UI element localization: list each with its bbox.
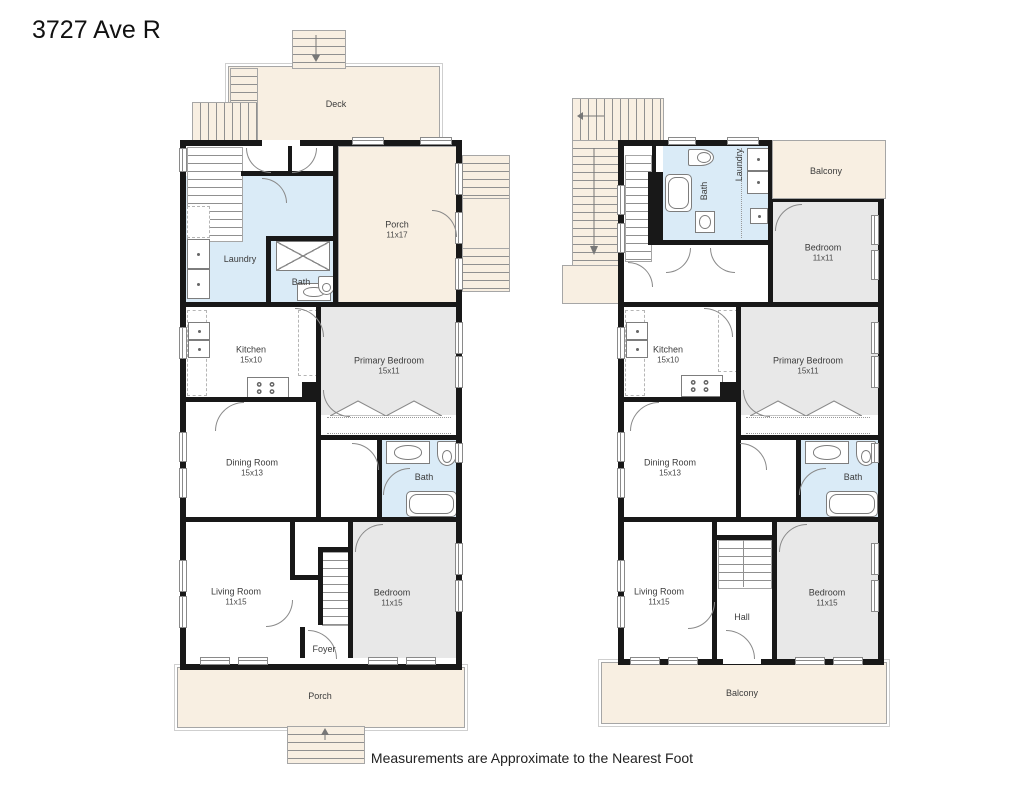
window — [179, 432, 187, 462]
room-label-balcony-front: Balcony — [726, 687, 758, 699]
window — [352, 137, 384, 145]
room-label-living-room-2: Living Room11x15 — [634, 586, 684, 609]
window — [727, 137, 759, 145]
window — [871, 443, 879, 463]
window — [420, 137, 452, 145]
stairs-up-arrow-icon — [320, 727, 330, 741]
window — [455, 580, 463, 612]
window — [455, 356, 463, 388]
window — [179, 596, 187, 628]
window — [871, 580, 879, 612]
window — [617, 223, 625, 253]
window — [238, 657, 268, 665]
window — [617, 560, 625, 592]
room-label-foyer: Foyer — [312, 643, 335, 655]
room-label-primary-bedroom-2: Primary Bedroom15x11 — [773, 355, 843, 378]
stairs-down-arrow-icon — [589, 146, 599, 258]
room-label-primary-bedroom: Primary Bedroom15x11 — [354, 355, 424, 378]
porch-side-stairs-landing — [462, 198, 510, 250]
room-label-bath-main: Bath — [415, 471, 434, 483]
room-label-hall: Hall — [734, 611, 750, 623]
stairs-left-arrow-icon — [576, 111, 606, 121]
window — [179, 468, 187, 498]
room-label-bath-rear: Bath — [698, 182, 710, 201]
footer-note: Measurements are Approximate to the Near… — [330, 750, 734, 766]
room-label-bedroom: Bedroom11x15 — [374, 587, 411, 610]
exterior-stairs-landing — [562, 265, 620, 304]
window — [455, 322, 463, 354]
room-label-laundry-2: Laundry — [733, 149, 745, 182]
window — [871, 215, 879, 245]
window — [455, 543, 463, 575]
window — [455, 163, 463, 195]
porch-side-stairs-upper — [462, 155, 510, 200]
window — [668, 657, 698, 665]
window — [668, 137, 696, 145]
window — [406, 657, 436, 665]
window — [179, 560, 187, 592]
room-label-bath-main-2: Bath — [844, 471, 863, 483]
window — [630, 657, 660, 665]
window — [833, 657, 863, 665]
page-title: 3727 Ave R — [32, 16, 161, 45]
window — [455, 443, 463, 463]
room-label-porch-front: Porch — [308, 690, 332, 702]
window — [179, 327, 187, 359]
room-label-dining-room-2: Dining Room15x13 — [644, 457, 696, 480]
room-label-living-room: Living Room11x15 — [211, 586, 261, 609]
window — [368, 657, 398, 665]
room-label-balcony-rear: Balcony — [810, 165, 842, 177]
window — [455, 258, 463, 290]
window — [617, 596, 625, 628]
deck-side-stairs-upper — [230, 68, 258, 105]
room-label-dining-room: Dining Room15x13 — [226, 457, 278, 480]
room-label-bedroom-rear: Bedroom11x11 — [805, 242, 842, 265]
room-label-kitchen-2: Kitchen15x10 — [653, 344, 683, 367]
room-label-bath-upper: Bath — [292, 276, 311, 288]
porch-side-stairs-lower — [462, 248, 510, 292]
room-label-bedroom-front: Bedroom11x15 — [809, 587, 846, 610]
floor-plan-page: 3727 Ave R — [0, 0, 1024, 792]
window — [871, 543, 879, 575]
window — [617, 327, 625, 359]
window — [795, 657, 825, 665]
room-label-porch-upper: Porch11x17 — [385, 219, 409, 242]
stairs-down-arrow-icon — [311, 33, 321, 63]
room-label-laundry: Laundry — [224, 253, 257, 265]
window — [455, 212, 463, 244]
room-label-deck: Deck — [326, 98, 347, 110]
window — [179, 148, 187, 172]
room-label-kitchen: Kitchen15x10 — [236, 344, 266, 367]
window — [871, 322, 879, 354]
window — [200, 657, 230, 665]
deck-side-stairs-lower — [192, 102, 258, 143]
window — [617, 468, 625, 498]
window — [871, 250, 879, 280]
window — [617, 185, 625, 215]
window — [617, 432, 625, 462]
window — [871, 356, 879, 388]
door-opening — [262, 140, 300, 146]
